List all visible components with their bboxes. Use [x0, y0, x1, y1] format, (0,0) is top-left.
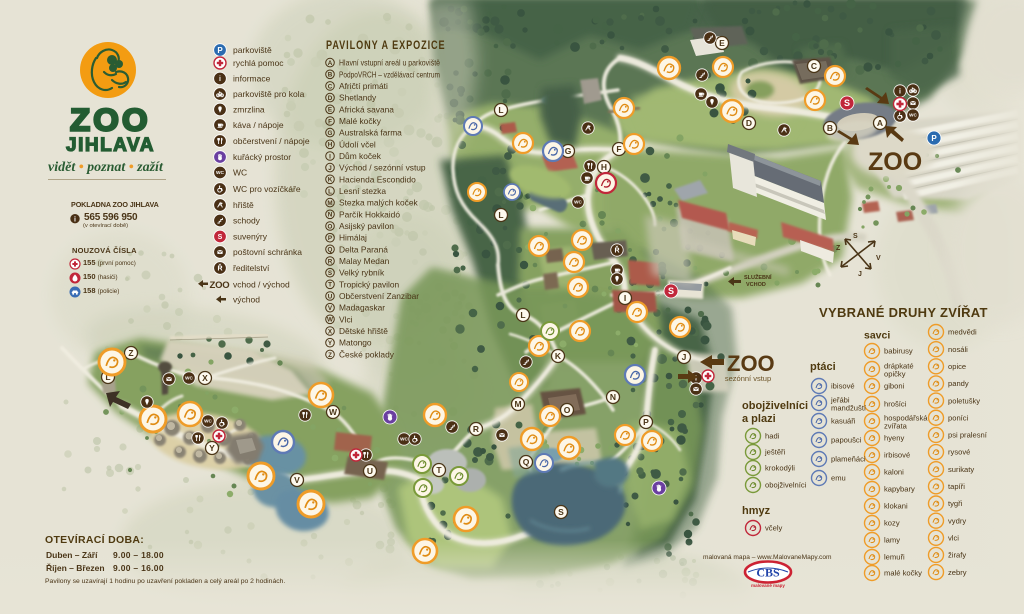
- svg-text:medvědi: medvědi: [948, 328, 977, 337]
- svg-text:poníci: poníci: [948, 413, 969, 422]
- svg-text:emu: emu: [831, 474, 846, 483]
- svg-text:rysové: rysové: [948, 448, 970, 457]
- svg-text:giboni: giboni: [884, 382, 905, 391]
- svg-text:klokani: klokani: [884, 502, 908, 511]
- svg-text:ještěři: ještěři: [764, 448, 786, 457]
- svg-text:hrošíci: hrošíci: [884, 400, 907, 409]
- svg-text:kaloni: kaloni: [884, 468, 904, 477]
- svg-text:malovaná mapa – www.MalovaneMa: malovaná mapa – www.MalovaneMapy.com: [703, 554, 832, 561]
- svg-text:savci: savci: [864, 330, 890, 342]
- svg-text:tygři: tygři: [948, 499, 963, 508]
- svg-text:pandy: pandy: [948, 379, 969, 388]
- svg-text:kozy: kozy: [884, 519, 900, 528]
- svg-text:hadi: hadi: [765, 432, 780, 441]
- svg-text:zvířata: zvířata: [884, 422, 908, 431]
- svg-text:psi pralesní: psi pralesní: [948, 431, 988, 440]
- svg-text:vydry: vydry: [948, 516, 966, 525]
- svg-text:vlci: vlci: [948, 534, 959, 543]
- svg-text:opice: opice: [948, 362, 966, 371]
- svg-text:obojživelníci: obojživelníci: [742, 400, 808, 412]
- svg-text:ptáci: ptáci: [810, 361, 836, 373]
- svg-text:lemuři: lemuři: [884, 553, 905, 562]
- svg-text:žirafy: žirafy: [948, 551, 966, 560]
- svg-text:poletušky: poletušky: [948, 396, 980, 405]
- svg-text:babirusy: babirusy: [884, 347, 913, 356]
- svg-text:tapíři: tapíři: [948, 482, 965, 491]
- svg-text:obojživelníci: obojživelníci: [765, 481, 807, 490]
- svg-text:malé kočky: malé kočky: [884, 569, 922, 578]
- svg-text:irbisové: irbisové: [884, 451, 910, 460]
- svg-text:kasuáři: kasuáři: [831, 417, 856, 426]
- svg-text:opičky: opičky: [884, 370, 906, 379]
- svg-text:krokodýli: krokodýli: [765, 464, 795, 473]
- svg-text:nosáli: nosáli: [948, 345, 968, 354]
- svg-text:hmyz: hmyz: [742, 505, 771, 517]
- svg-text:hyeny: hyeny: [884, 434, 904, 443]
- svg-text:malované mapy: malované mapy: [751, 583, 785, 588]
- svg-text:a plazi: a plazi: [742, 413, 776, 425]
- svg-text:lamy: lamy: [884, 536, 900, 545]
- svg-text:plameňáci: plameňáci: [831, 455, 866, 464]
- svg-text:kapybary: kapybary: [884, 485, 915, 494]
- svg-text:včely: včely: [765, 524, 783, 533]
- svg-text:surikaty: surikaty: [948, 465, 974, 474]
- svg-text:zebry: zebry: [948, 568, 967, 577]
- svg-text:mandžuští: mandžuští: [831, 404, 867, 413]
- svg-text:ibisové: ibisové: [831, 382, 855, 391]
- svg-text:papoušci: papoušci: [831, 436, 862, 445]
